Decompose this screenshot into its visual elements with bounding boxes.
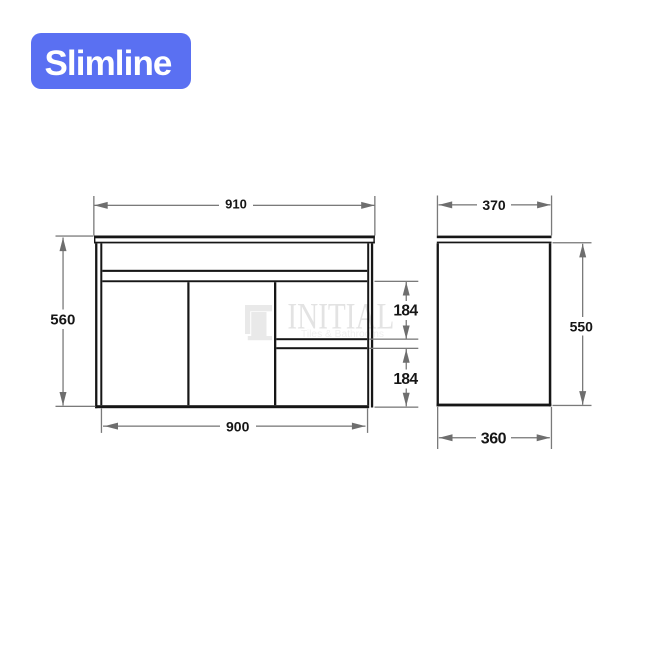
svg-text:184: 184 <box>393 303 418 320</box>
svg-text:900: 900 <box>226 419 250 435</box>
svg-text:370: 370 <box>482 197 506 213</box>
svg-text:560: 560 <box>50 312 75 329</box>
svg-text:360: 360 <box>481 430 507 447</box>
svg-text:550: 550 <box>570 318 594 334</box>
svg-text:910: 910 <box>225 196 247 211</box>
svg-text:184: 184 <box>393 371 418 388</box>
